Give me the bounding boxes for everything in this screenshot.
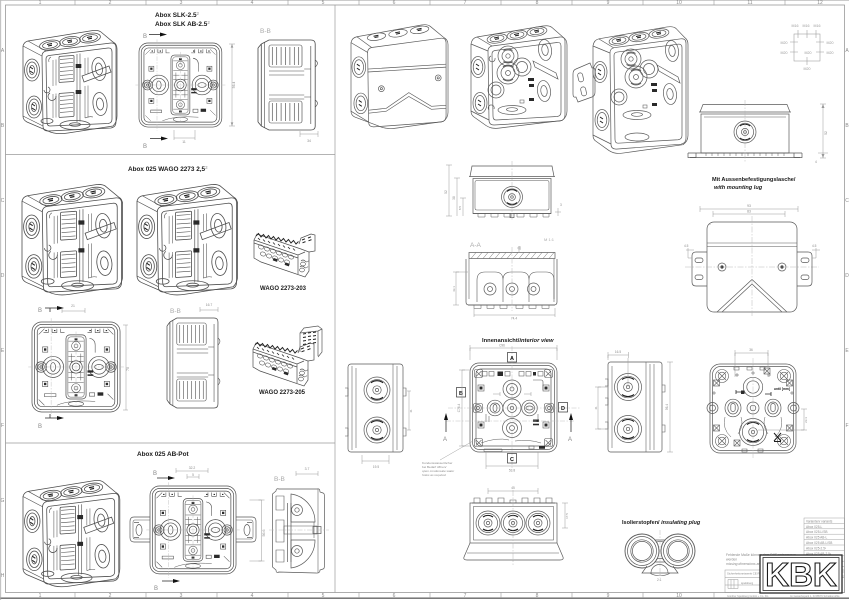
svg-text:WAGO 2273-205: WAGO 2273-205 bbox=[259, 390, 306, 396]
svg-text:Abox SLK AB-2.52: Abox SLK AB-2.52 bbox=[155, 20, 210, 28]
svg-text:B-B: B-B bbox=[170, 308, 181, 315]
svg-text:until [mm]: until [mm] bbox=[774, 387, 790, 391]
svg-text:11: 11 bbox=[182, 140, 186, 144]
svg-text:B: B bbox=[143, 144, 147, 150]
svg-text:9: 9 bbox=[607, 593, 610, 599]
svg-text:3: 3 bbox=[180, 0, 183, 6]
svg-text:2: 2 bbox=[109, 0, 112, 6]
svg-text:C: C bbox=[510, 457, 514, 463]
svg-text:Abox 025 WAGO 2273 2,52: Abox 025 WAGO 2273 2,52 bbox=[128, 165, 208, 173]
svg-text:Varianten/ variants: Varianten/ variants bbox=[806, 519, 833, 523]
svg-text:6: 6 bbox=[393, 593, 396, 599]
svg-text:B-B: B-B bbox=[260, 28, 271, 35]
svg-text:A: A bbox=[568, 437, 572, 443]
svg-text:34: 34 bbox=[307, 139, 311, 143]
svg-text:41: 41 bbox=[594, 406, 598, 410]
svg-text:3: 3 bbox=[560, 203, 562, 207]
svg-text:spelsberg: spelsberg bbox=[741, 581, 754, 585]
svg-text:17.5: 17.5 bbox=[565, 513, 569, 519]
svg-text:83: 83 bbox=[747, 210, 751, 214]
svg-text:Abox 025-L: Abox 025-L bbox=[806, 525, 823, 529]
svg-text:10: 10 bbox=[676, 0, 682, 6]
svg-text:M20: M20 bbox=[781, 41, 788, 45]
svg-text:KBK: KBK bbox=[765, 556, 837, 593]
svg-text:Abox 025-2.5²: Abox 025-2.5² bbox=[806, 546, 826, 550]
svg-text:with mounting lug: with mounting lug bbox=[714, 185, 763, 191]
svg-text:M16: M16 bbox=[814, 24, 821, 28]
svg-text:M20: M20 bbox=[827, 51, 834, 55]
svg-text:Innenansicht/interior view: Innenansicht/interior view bbox=[482, 338, 554, 344]
svg-text:19.5: 19.5 bbox=[373, 465, 379, 469]
svg-text:23.3: 23.3 bbox=[804, 417, 808, 423]
svg-text:45: 45 bbox=[511, 486, 515, 490]
svg-text:A-A: A-A bbox=[470, 242, 482, 249]
svg-text:11: 11 bbox=[747, 0, 752, 6]
svg-text:52: 52 bbox=[824, 131, 828, 135]
svg-text:2:1: 2:1 bbox=[657, 578, 662, 582]
svg-text:WAGO 2273-203: WAGO 2273-203 bbox=[260, 286, 307, 292]
svg-text:36: 36 bbox=[749, 348, 753, 352]
svg-text:3.7: 3.7 bbox=[305, 467, 310, 471]
svg-text:A: A bbox=[443, 437, 447, 443]
svg-text:2: 2 bbox=[109, 593, 112, 599]
svg-text:5: 5 bbox=[322, 0, 325, 6]
svg-text:C96: C96 bbox=[499, 344, 505, 348]
svg-text:4: 4 bbox=[251, 593, 254, 599]
svg-text:M 1:1: M 1:1 bbox=[544, 237, 555, 242]
svg-text:B: B bbox=[38, 308, 42, 314]
svg-text:werden: werden bbox=[726, 558, 737, 562]
svg-text:1: 1 bbox=[39, 593, 42, 599]
svg-text:38: 38 bbox=[452, 196, 456, 200]
svg-text:D: D bbox=[1, 273, 5, 279]
svg-text:H: H bbox=[1, 573, 5, 579]
svg-text:M20: M20 bbox=[804, 67, 811, 71]
svg-text:D: D bbox=[845, 273, 849, 279]
svg-text:16.5: 16.5 bbox=[615, 350, 621, 354]
svg-text:M16: M16 bbox=[803, 24, 810, 28]
svg-text:M20: M20 bbox=[827, 41, 834, 45]
svg-text:C: C bbox=[1, 198, 5, 204]
svg-text:8: 8 bbox=[536, 593, 539, 599]
svg-text:21: 21 bbox=[71, 304, 75, 308]
svg-text:A: A bbox=[510, 356, 514, 362]
svg-text:4.5: 4.5 bbox=[812, 244, 817, 248]
svg-text:M20: M20 bbox=[805, 51, 812, 55]
svg-text:G: G bbox=[1, 498, 5, 504]
svg-text:Isolierstopfen/ insulating plu: Isolierstopfen/ insulating plug bbox=[622, 520, 701, 526]
svg-text:Im Gewerbepark 1, D-58579 Scha: Im Gewerbepark 1, D-58579 Schalksmühle bbox=[790, 594, 840, 598]
svg-text:41: 41 bbox=[409, 409, 413, 413]
svg-text:B: B bbox=[38, 424, 42, 430]
svg-text:4: 4 bbox=[251, 0, 254, 6]
svg-text:C: C bbox=[845, 198, 849, 204]
svg-text:Abox 025 AB-Pot: Abox 025 AB-Pot bbox=[137, 451, 189, 458]
svg-text:Abox SLK-2.52: Abox SLK-2.52 bbox=[155, 11, 200, 19]
svg-text:B-B: B-B bbox=[274, 476, 285, 483]
svg-text:holes as required: holes as required bbox=[422, 473, 446, 477]
svg-text:9: 9 bbox=[607, 0, 610, 6]
svg-text:M20: M20 bbox=[781, 51, 788, 55]
svg-text:56.4: 56.4 bbox=[232, 82, 236, 89]
svg-text:Abox 025 AB-L/SB: Abox 025 AB-L/SB bbox=[806, 541, 832, 545]
svg-text:5: 5 bbox=[192, 473, 194, 477]
svg-text:Abox 025 AB-L: Abox 025 AB-L bbox=[806, 536, 827, 540]
svg-text:C76.4: C76.4 bbox=[457, 404, 461, 413]
svg-text:4.5: 4.5 bbox=[684, 244, 689, 248]
svg-text:B: B bbox=[459, 391, 463, 397]
svg-text:32.2: 32.2 bbox=[189, 466, 196, 470]
svg-text:5: 5 bbox=[322, 593, 325, 599]
svg-text:43.1: 43.1 bbox=[452, 286, 456, 292]
svg-text:E: E bbox=[845, 348, 849, 354]
svg-text:56.4: 56.4 bbox=[665, 404, 669, 410]
svg-text:F: F bbox=[845, 423, 848, 429]
svg-text:F: F bbox=[1, 423, 4, 429]
svg-text:8: 8 bbox=[536, 0, 539, 6]
svg-text:B: B bbox=[153, 471, 157, 477]
svg-text:93: 93 bbox=[747, 204, 751, 208]
svg-text:74.4: 74.4 bbox=[511, 317, 517, 321]
svg-text:70: 70 bbox=[126, 367, 130, 371]
svg-text:B: B bbox=[154, 586, 158, 592]
svg-text:B: B bbox=[845, 123, 849, 129]
svg-text:Günther Spelsberg GmbH + Co. K: Günther Spelsberg GmbH + Co. KG bbox=[727, 594, 768, 598]
svg-text:52: 52 bbox=[444, 190, 448, 194]
svg-text:M16: M16 bbox=[792, 24, 799, 28]
svg-text:D: D bbox=[561, 406, 565, 412]
svg-text:12: 12 bbox=[817, 0, 823, 6]
svg-text:B: B bbox=[143, 34, 147, 40]
svg-text:A: A bbox=[845, 48, 849, 54]
svg-text:7: 7 bbox=[464, 0, 467, 6]
svg-text:6: 6 bbox=[393, 0, 396, 6]
svg-text:7: 7 bbox=[464, 593, 467, 599]
svg-text:53.8: 53.8 bbox=[509, 469, 515, 473]
svg-text:8.5: 8.5 bbox=[458, 206, 462, 211]
svg-text:10: 10 bbox=[676, 593, 682, 599]
svg-text:2.5: 2.5 bbox=[518, 245, 522, 250]
svg-text:56.6: 56.6 bbox=[262, 530, 266, 537]
svg-text:3: 3 bbox=[180, 593, 183, 599]
svg-text:1: 1 bbox=[39, 0, 42, 6]
svg-text:Mit Aussenbefestigungslasche/: Mit Aussenbefestigungslasche/ bbox=[712, 177, 796, 183]
svg-text:Abox 025-L/SB: Abox 025-L/SB bbox=[806, 530, 827, 534]
svg-text:4: 4 bbox=[815, 160, 817, 164]
svg-text:16.7: 16.7 bbox=[206, 303, 213, 307]
